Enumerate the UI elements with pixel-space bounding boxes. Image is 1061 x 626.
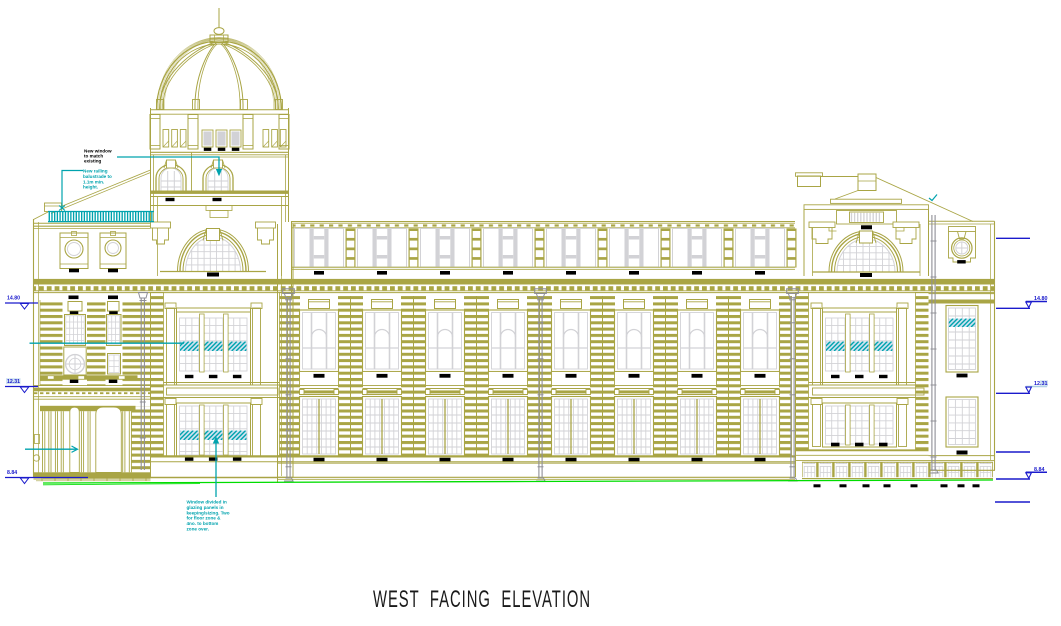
svg-text:balustrade to: balustrade to [83,174,112,179]
svg-text:8.84: 8.84 [7,470,17,476]
svg-text:WEST FACING ELEVATION: WEST FACING ELEVATION [373,586,591,613]
svg-text:12.31: 12.31 [1034,381,1048,387]
svg-text:for floor zone &: for floor zone & [187,516,222,521]
svg-text:glazing panels in: glazing panels in [187,505,224,510]
svg-text:height.: height. [83,185,98,190]
svg-text:8.84: 8.84 [1034,467,1045,473]
svg-text:14.80: 14.80 [1034,296,1048,302]
svg-text:New railing: New railing [83,169,108,174]
svg-text:existing: existing [84,159,102,164]
svg-text:12.31: 12.31 [7,379,20,385]
svg-text:keeping/sizing. Two: keeping/sizing. Two [187,510,230,515]
svg-text:4no. to bottom: 4no. to bottom [187,521,219,526]
svg-text:1.1m min.: 1.1m min. [83,179,104,184]
svg-text:14.80: 14.80 [7,296,20,302]
svg-text:Window divided in: Window divided in [187,500,227,505]
svg-text:zone over.: zone over. [187,527,209,532]
